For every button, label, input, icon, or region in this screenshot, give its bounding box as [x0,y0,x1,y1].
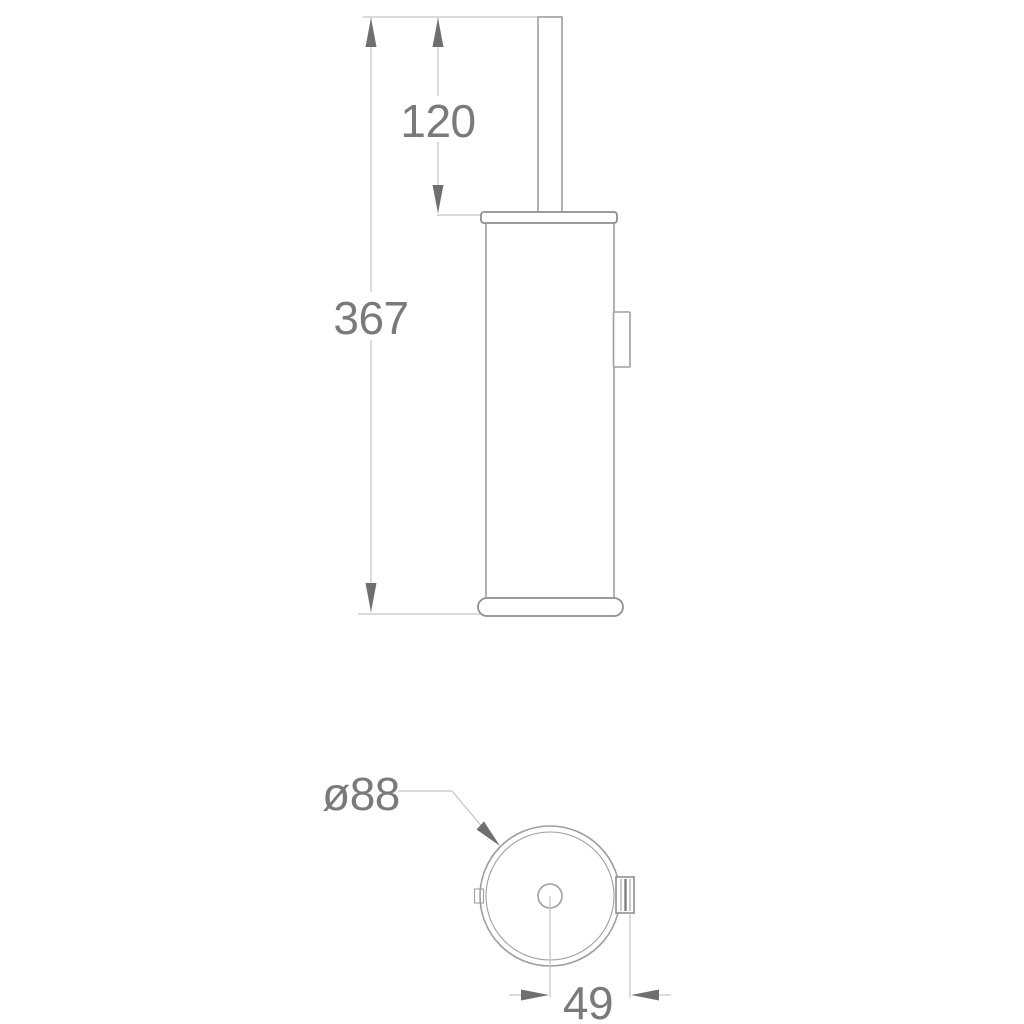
canister-body [486,222,614,599]
arrow-right-icon [521,990,549,1001]
brush-holder-side [478,17,630,616]
arrow-down-icon [366,583,377,612]
wall-bracket-side [614,312,631,367]
drawing-page: 367 120 [0,0,1024,1024]
arrow-left-icon [631,990,659,1001]
dimension-label-diameter: ø88 [322,768,400,820]
dimension-label-total-height: 367 [333,292,408,344]
side-view: 367 120 [333,17,630,616]
leader-line [398,791,489,835]
dimension-label-wall-offset: 49 [563,977,613,1024]
wall-bracket-bottom [616,877,634,913]
brush-handle-rod [538,17,562,214]
arrow-up-icon [366,18,377,47]
arrow-down-icon [433,185,444,213]
dimension-rod-height: 120 [400,18,475,213]
arrow-up-icon [433,18,444,47]
dimension-label-rod-height: 120 [400,95,475,147]
canister-lid [481,212,617,223]
dimension-total-height: 367 [333,18,408,612]
technical-drawing-canvas: 367 120 [0,0,1024,1024]
bottom-view: ø88 49 [322,768,671,1024]
canister-base [478,598,623,616]
dimension-diameter: ø88 [322,768,500,846]
